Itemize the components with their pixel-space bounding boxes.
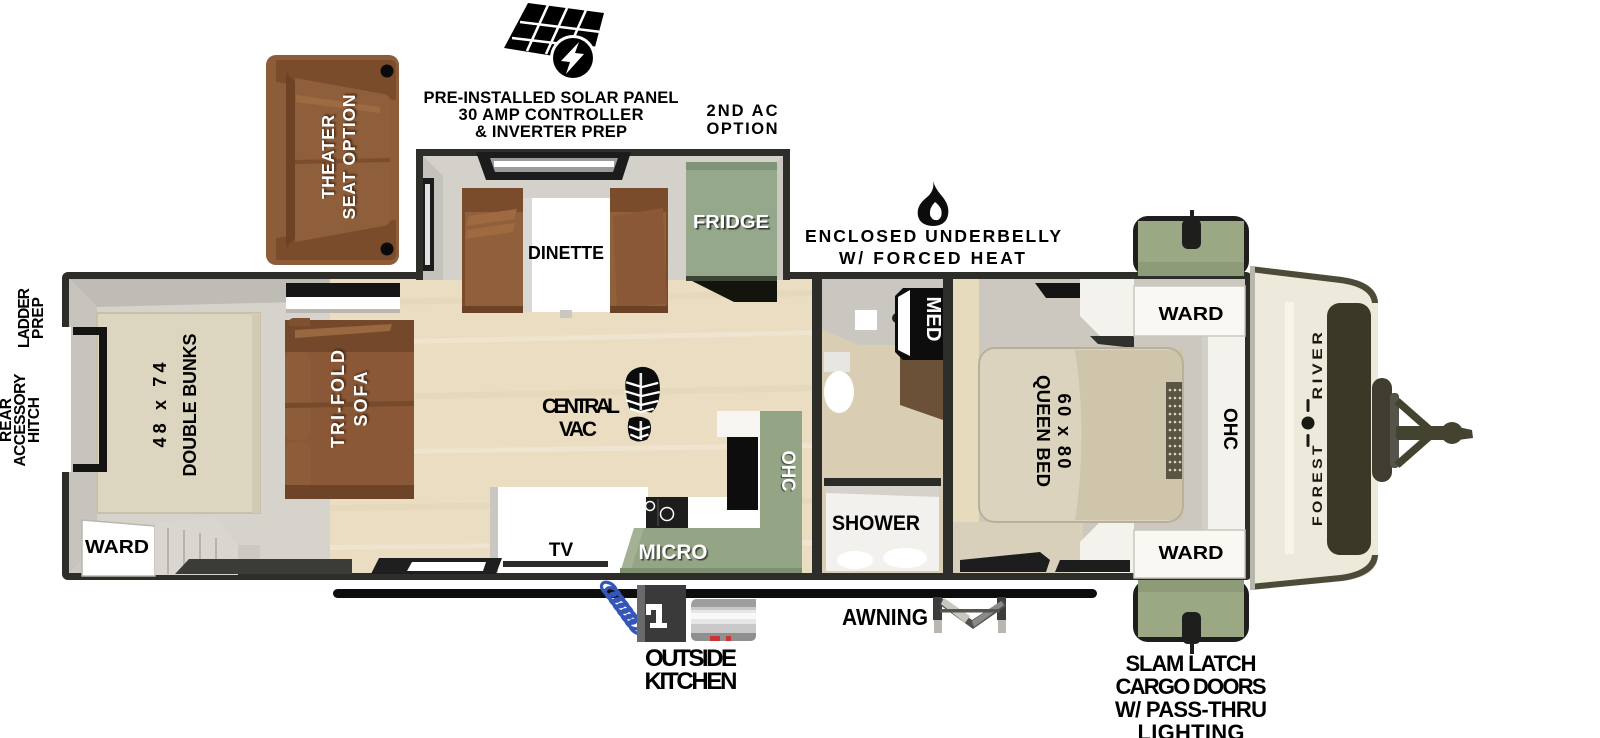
svg-text:SLAM LATCH: SLAM LATCH xyxy=(1126,651,1257,676)
svg-text:DINETTE: DINETTE xyxy=(528,243,604,263)
svg-text:& INVERTER PREP: & INVERTER PREP xyxy=(475,123,627,141)
svg-text:LIGHTING: LIGHTING xyxy=(1138,720,1245,738)
svg-text:QUEEN BED: QUEEN BED xyxy=(1033,375,1054,487)
svg-text:WARD: WARD xyxy=(1159,543,1224,563)
svg-text:2ND AC: 2ND AC xyxy=(707,102,778,120)
svg-text:OPTION: OPTION xyxy=(707,120,778,138)
svg-text:HITCH: HITCH xyxy=(26,397,43,443)
svg-text:VAC: VAC xyxy=(559,418,597,441)
svg-text:MICRO: MICRO xyxy=(639,541,708,564)
svg-text:PREP: PREP xyxy=(30,297,47,339)
svg-text:WARD: WARD xyxy=(85,537,149,557)
svg-text:RIVER: RIVER xyxy=(1309,329,1325,400)
svg-text:SEAT OPTION: SEAT OPTION xyxy=(339,95,359,220)
svg-text:SOFA: SOFA xyxy=(351,372,371,427)
svg-text:OHC: OHC xyxy=(1219,408,1241,450)
svg-text:THEATER: THEATER xyxy=(318,115,338,199)
svg-text:CENTRAL: CENTRAL xyxy=(542,395,620,418)
svg-text:CARGO DOORS: CARGO DOORS xyxy=(1116,674,1267,699)
svg-text:ENCLOSED UNDERBELLY: ENCLOSED UNDERBELLY xyxy=(805,226,1061,246)
svg-text:SHOWER: SHOWER xyxy=(832,512,920,535)
svg-text:FOREST: FOREST xyxy=(1309,442,1325,526)
svg-text:W/ PASS-THRU: W/ PASS-THRU xyxy=(1115,697,1267,722)
svg-text:KITCHEN: KITCHEN xyxy=(645,668,738,695)
svg-text:MED: MED xyxy=(922,297,944,342)
svg-text:30 AMP CONTROLLER: 30 AMP CONTROLLER xyxy=(459,106,644,124)
svg-text:WARD: WARD xyxy=(1159,304,1224,324)
svg-text:FRIDGE: FRIDGE xyxy=(693,212,769,232)
svg-text:DOUBLE BUNKS: DOUBLE BUNKS xyxy=(180,334,200,477)
svg-text:PRE-INSTALLED SOLAR PANEL: PRE-INSTALLED SOLAR PANEL xyxy=(424,89,679,107)
svg-text:OHC: OHC xyxy=(777,451,798,492)
svg-text:TV: TV xyxy=(549,540,574,561)
svg-text:AWNING: AWNING xyxy=(842,604,928,630)
